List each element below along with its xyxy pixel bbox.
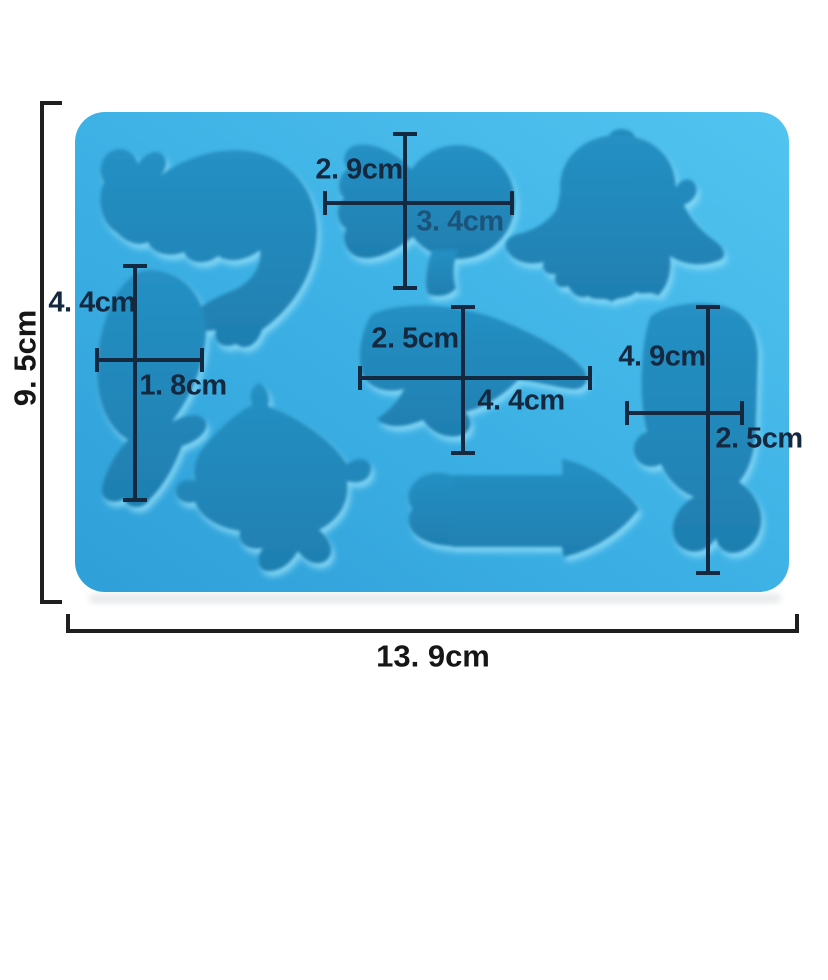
dim-height-diving-fish: 4. 4cm [48,289,135,318]
mold-shadow [90,594,780,603]
mold-photo [0,0,828,980]
product-image: 2. 9cm 3. 4cm 4. 4cm 1. 8cm 2. 5cm 4. 4c… [0,0,828,980]
dim-width-fantail-fish: 3. 4cm [416,208,503,237]
dim-height-fantail-fish: 2. 9cm [315,156,402,185]
mold-width-label: 13. 9cm [376,641,490,672]
width-bracket [68,614,797,631]
height-bracket [42,103,62,602]
dim-height-seal: 2. 5cm [371,325,458,354]
dim-width-seal: 4. 4cm [477,387,564,416]
dim-height-whale: 4. 9cm [618,343,705,372]
dim-width-whale: 2. 5cm [715,425,802,454]
mold-height-label: 9. 5cm [10,310,41,407]
dim-width-diving-fish: 1. 8cm [139,372,226,401]
